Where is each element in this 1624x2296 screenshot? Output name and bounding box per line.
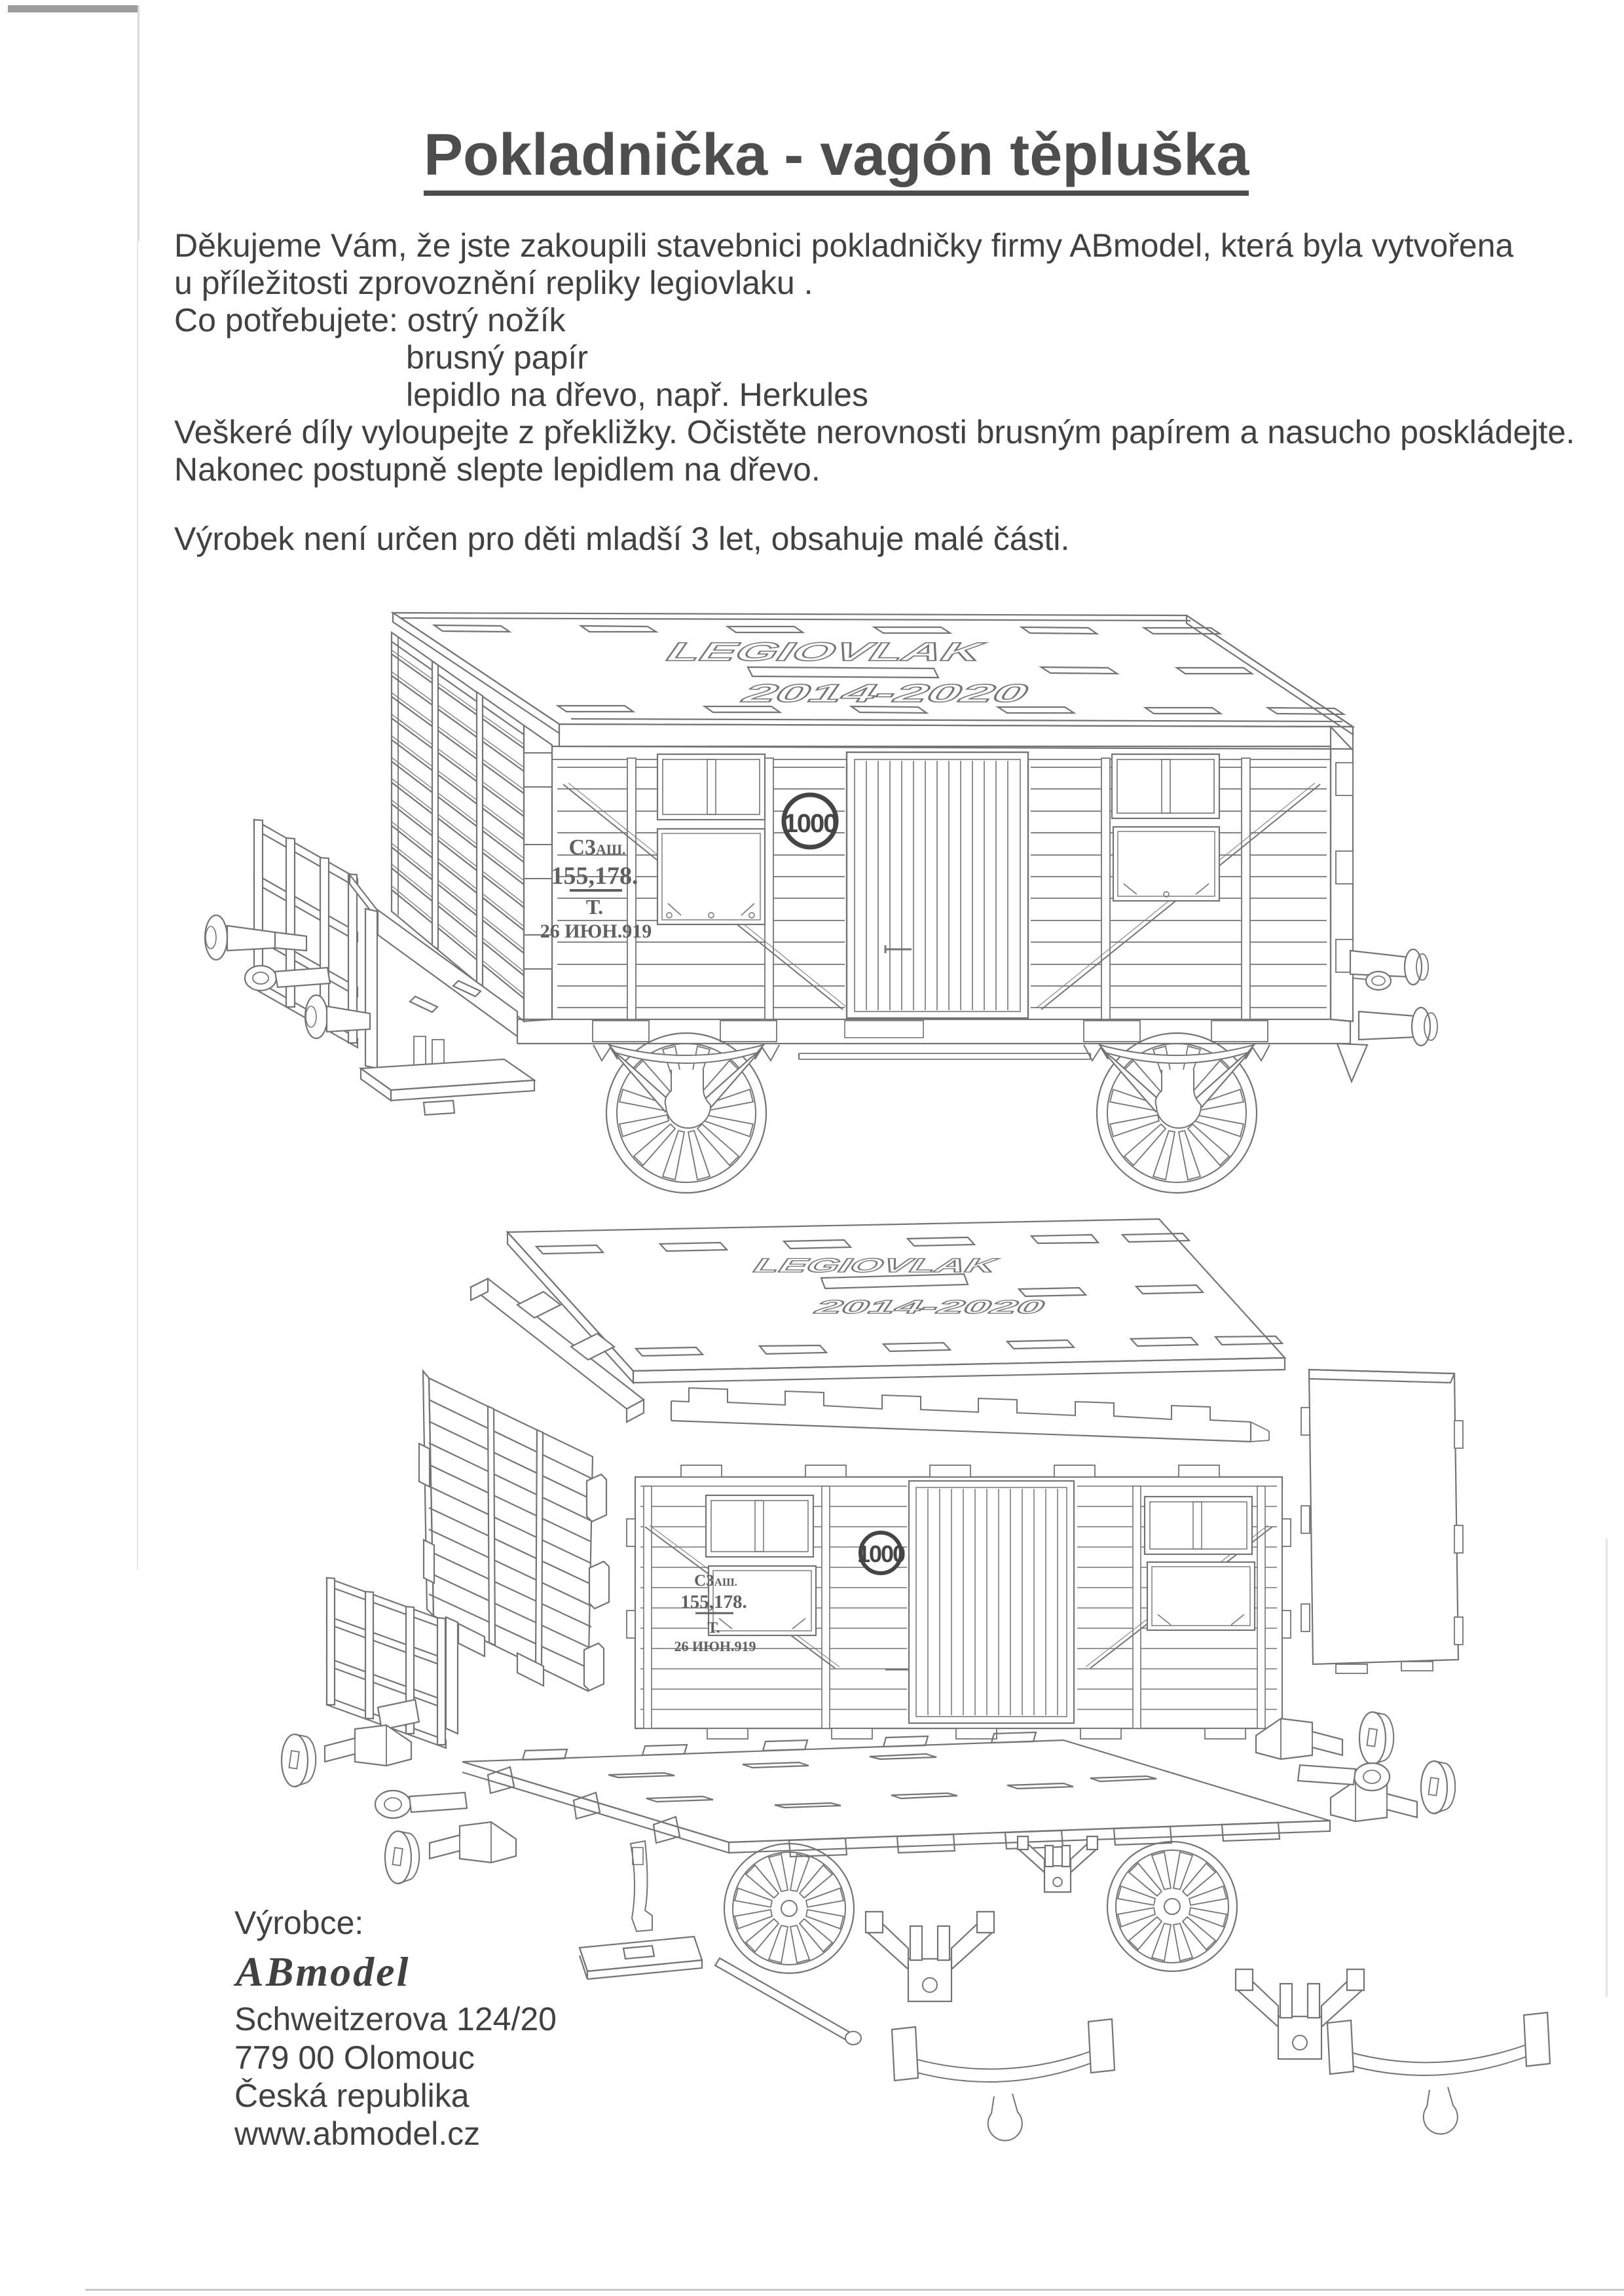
svg-text:LEGIOVLAK: LEGIOVLAK bbox=[747, 1254, 1004, 1277]
svg-text:Т.: Т. bbox=[586, 895, 603, 919]
svg-text:1000: 1000 bbox=[784, 809, 838, 838]
svg-text:26 ИЮН.919: 26 ИЮН.919 bbox=[540, 920, 652, 942]
svg-text:26 ИЮН.919: 26 ИЮН.919 bbox=[674, 1638, 756, 1654]
svg-text:2014-2020: 2014-2020 bbox=[809, 1296, 1052, 1317]
svg-text:Т.: Т. bbox=[707, 1620, 720, 1637]
svg-text:2014-2020: 2014-2020 bbox=[735, 679, 1037, 707]
svg-text:C3АШ.: C3АШ. bbox=[568, 835, 625, 860]
svg-text:155,178.: 155,178. bbox=[680, 1592, 747, 1613]
svg-text:LEGIOVLAK: LEGIOVLAK bbox=[659, 638, 992, 666]
svg-text:1000: 1000 bbox=[857, 1540, 905, 1567]
svg-text:155,178.: 155,178. bbox=[551, 862, 638, 890]
